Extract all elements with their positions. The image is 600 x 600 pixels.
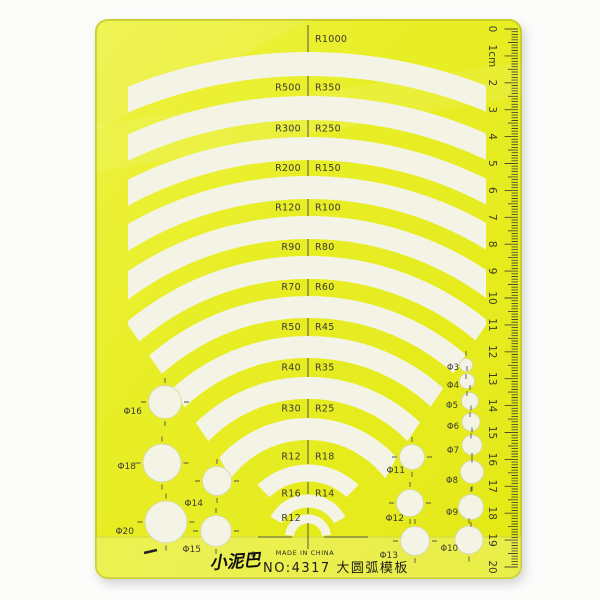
ruler-number: 2 <box>486 79 498 86</box>
arc-label-right: R100 <box>315 203 341 214</box>
model-number-text: NO:4317 大圆弧模板 <box>263 561 409 576</box>
ruler-numbers: 0 1cm 2 3 4 5 6 7 8 9 10 11 12 13 14 15 … <box>486 26 498 574</box>
arc-label-right: R35 <box>315 363 335 374</box>
ruler-number: 3 <box>486 106 498 113</box>
ruler-number: 9 <box>486 268 498 275</box>
ruler-number: 15 <box>486 426 498 439</box>
circle-label-phi13: Φ13 <box>379 551 398 561</box>
circle-hole-phi9 <box>459 495 484 520</box>
arc-label-left: R30 <box>281 404 301 415</box>
arc-label-left: R120 <box>275 203 301 214</box>
circle-label-phi4: Φ4 <box>447 381 459 391</box>
circle-hole-phi12 <box>397 490 424 517</box>
ruler-number: 17 <box>486 480 498 493</box>
ruler-number: 18 <box>486 507 498 520</box>
circle-hole-phi15 <box>201 516 232 547</box>
circle-hole-phi8 <box>461 461 484 484</box>
circle-hole-phi6 <box>462 413 480 431</box>
ruler-number: 16 <box>486 453 498 467</box>
circle-hole-phi10 <box>455 526 483 554</box>
circle-label-phi10: Φ10 <box>440 544 458 554</box>
ruler-number: 1cm <box>486 45 498 68</box>
arc-label-right: R45 <box>315 322 335 333</box>
circle-hole-phi16 <box>149 386 182 419</box>
circle-hole-phi5 <box>462 393 479 410</box>
arc-label-left: R12 <box>281 513 301 524</box>
circle-label-phi11: Φ11 <box>386 466 405 476</box>
ruler-number: 11 <box>486 318 498 331</box>
arc-label-right: R80 <box>315 242 335 253</box>
circle-label-phi15: Φ15 <box>182 545 201 555</box>
ruler-number: 6 <box>486 187 498 194</box>
ruler-tick-comb <box>505 29 519 567</box>
circle-label-phi20: Φ20 <box>115 527 134 537</box>
arc-label-left: R70 <box>281 282 301 293</box>
circle-label-phi6: Φ6 <box>447 422 459 432</box>
ruler-number: 0 <box>486 26 498 33</box>
ruler-number: 10 <box>486 291 498 304</box>
ruler-number: 12 <box>486 345 498 358</box>
arc-label-left: R40 <box>281 363 301 374</box>
ruler-number: 8 <box>486 241 498 248</box>
circle-label-phi14: Φ14 <box>184 499 203 509</box>
arc-label-right: R18 <box>315 452 335 463</box>
arc-label-left: R300 <box>275 124 301 135</box>
circle-label-phi16: Φ16 <box>123 407 142 417</box>
circle-label-phi18: Φ18 <box>117 462 136 472</box>
ruler-number: 4 <box>486 133 498 140</box>
ruler-number: 5 <box>486 160 498 167</box>
arc-template-stencil: R1000 R500 R350 R300 R250 R200 R150 R120… <box>0 0 600 600</box>
arc-label-right: R14 <box>315 489 335 500</box>
arc-label-left: R90 <box>281 242 301 253</box>
arc-label-right: R150 <box>315 163 341 174</box>
circle-hole-phi13 <box>401 527 430 556</box>
ruler-number: 13 <box>486 372 498 385</box>
arc-label-right: R25 <box>315 404 335 415</box>
arc-label-right: R250 <box>315 124 341 135</box>
arc-label-right: R60 <box>315 282 335 293</box>
ruler-number: 14 <box>486 399 498 413</box>
circle-label-phi7: Φ7 <box>447 446 459 456</box>
arc-label-left: R500 <box>275 83 301 94</box>
circle-label-phi8: Φ8 <box>446 476 458 486</box>
ruler-number: 19 <box>486 533 498 546</box>
circle-label-phi9: Φ9 <box>446 508 458 518</box>
circle-hole-phi14 <box>203 467 232 496</box>
made-in-text: MADE IN CHINA <box>276 549 335 557</box>
circle-label-phi5: Φ5 <box>446 401 458 411</box>
arc-label-left: R200 <box>275 163 301 174</box>
arc-label-left: R50 <box>281 322 301 333</box>
circle-label-phi3: Φ3 <box>447 363 459 373</box>
ruler-number: 7 <box>486 214 498 221</box>
ruler-number: 20 <box>486 560 498 573</box>
registered-mark: ® <box>250 551 257 559</box>
circle-hole-phi7 <box>462 435 482 455</box>
arc-label-left: R16 <box>281 489 301 500</box>
arc-label-right: R1000 <box>315 34 347 45</box>
arc-label-right: R350 <box>315 83 341 94</box>
arc-label-left: R12 <box>281 452 301 463</box>
circle-hole-phi4 <box>460 374 475 389</box>
product-photo: R1000 R500 R350 R300 R250 R200 R150 R120… <box>0 0 600 600</box>
circle-hole-phi3 <box>460 359 473 372</box>
circle-hole-phi20 <box>145 501 187 543</box>
circle-label-phi12: Φ12 <box>385 514 404 524</box>
circle-hole-phi18 <box>143 444 181 482</box>
